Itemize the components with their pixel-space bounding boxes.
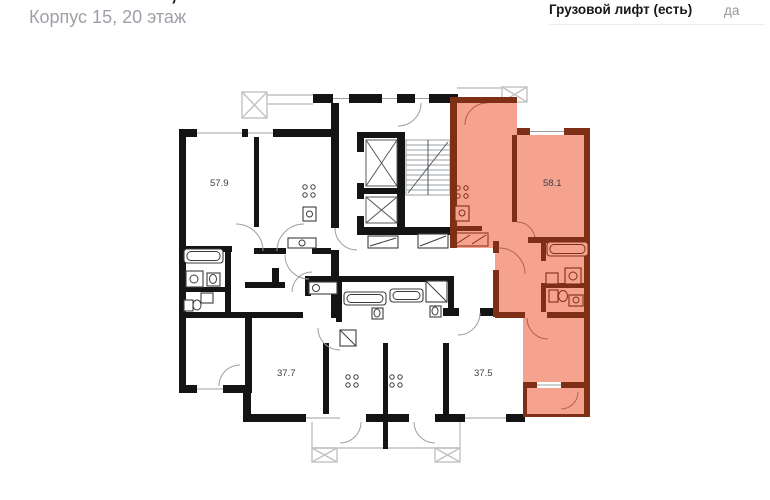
area-label-58-1: 58.1 (543, 178, 562, 189)
window (382, 94, 397, 103)
sink-icon (569, 295, 583, 306)
bathtub-icon (390, 289, 423, 302)
toilet-icon (372, 308, 383, 319)
bathtub-icon (547, 242, 588, 256)
floor-plan: 57.9 58.1 37.7 37.5 (0, 0, 770, 500)
sink-icon (201, 293, 213, 303)
floor-plan-page: 2-комнатная, 58.1 м² Корпус 15, 20 этаж … (0, 0, 770, 500)
window (197, 129, 242, 137)
bathtub-icon (184, 249, 223, 263)
window (530, 128, 564, 135)
window (537, 382, 561, 388)
window (248, 129, 273, 137)
elevator-1 (366, 140, 397, 186)
washer-icon (186, 271, 203, 287)
apartment-37-7-region[interactable] (252, 318, 381, 412)
shower-icon (426, 281, 447, 302)
sink-icon (546, 273, 558, 284)
stairs (406, 140, 450, 195)
washer-icon (565, 268, 581, 284)
sink-icon (455, 206, 469, 221)
window (333, 94, 349, 103)
window (465, 414, 506, 422)
elevator-2 (366, 197, 397, 223)
toilet-icon (430, 306, 441, 317)
toilet-icon (184, 300, 201, 311)
bathtub-icon (344, 292, 386, 305)
toilet-icon (207, 273, 220, 286)
core (366, 140, 450, 223)
apartment-37-5-region[interactable] (390, 318, 518, 412)
window (197, 385, 223, 393)
washer-icon (309, 282, 337, 294)
window (415, 94, 429, 103)
apartment-57-9-region[interactable] (186, 138, 331, 244)
